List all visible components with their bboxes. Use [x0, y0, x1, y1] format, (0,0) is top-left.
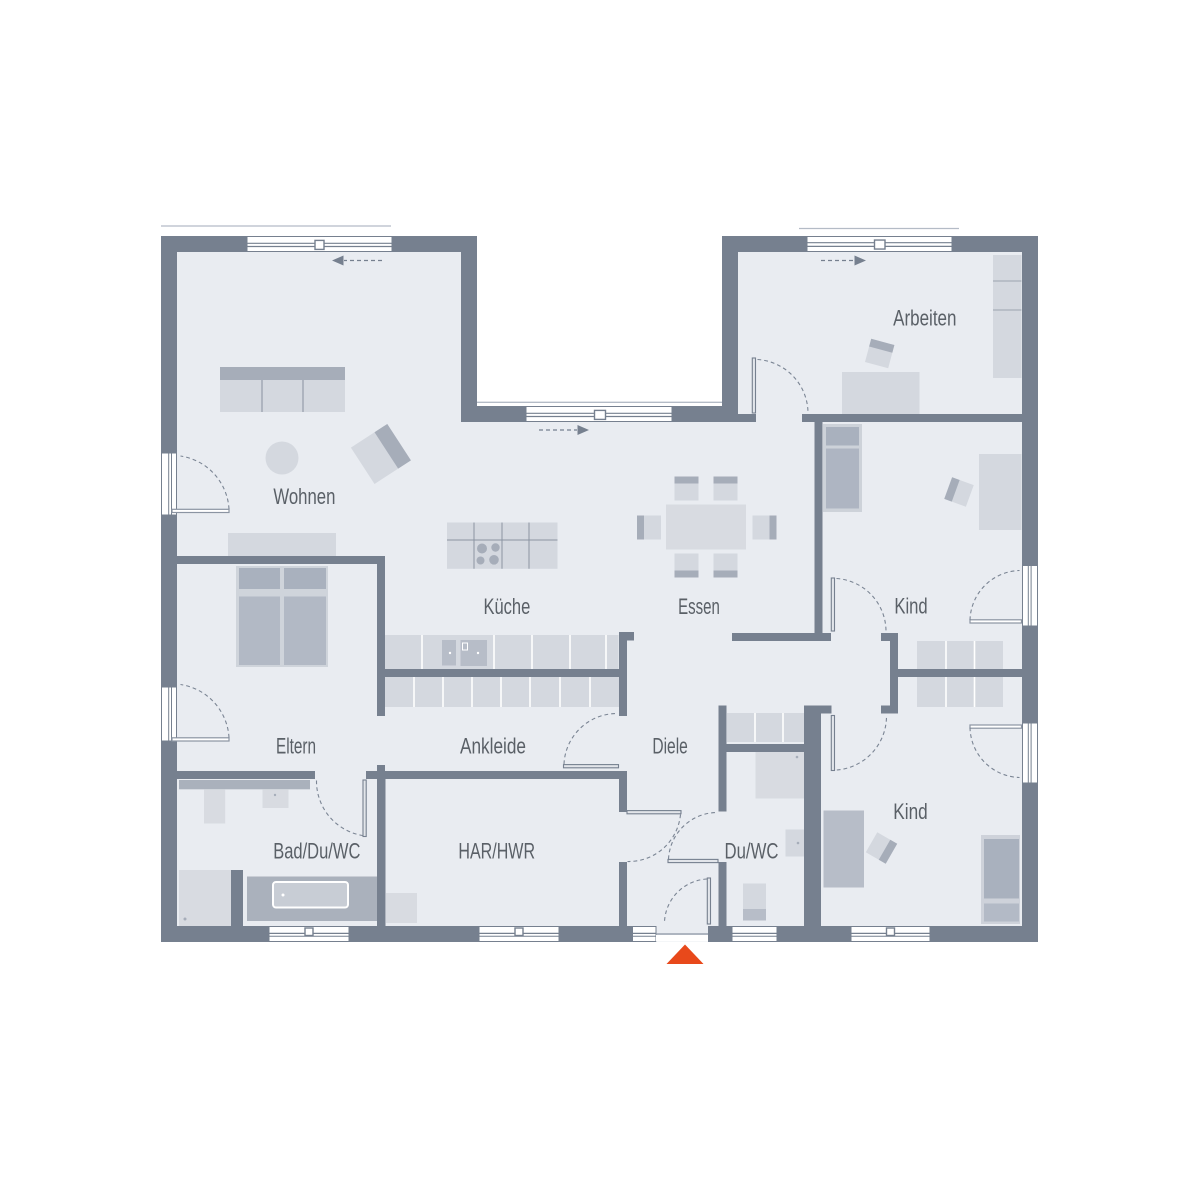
- svg-text:Ankleide: Ankleide: [460, 733, 526, 758]
- svg-text:Essen: Essen: [678, 594, 720, 619]
- svg-text:Kind: Kind: [893, 799, 927, 824]
- svg-text:Kind: Kind: [894, 594, 927, 619]
- svg-text:Küche: Küche: [484, 594, 531, 619]
- svg-text:HAR/HWR: HAR/HWR: [458, 839, 535, 864]
- svg-text:Diele: Diele: [652, 733, 687, 758]
- svg-text:Eltern: Eltern: [276, 733, 316, 758]
- svg-text:Bad/Du/WC: Bad/Du/WC: [273, 839, 360, 864]
- svg-text:Du/WC: Du/WC: [725, 839, 779, 864]
- svg-text:Wohnen: Wohnen: [273, 484, 335, 509]
- svg-text:Arbeiten: Arbeiten: [893, 306, 956, 331]
